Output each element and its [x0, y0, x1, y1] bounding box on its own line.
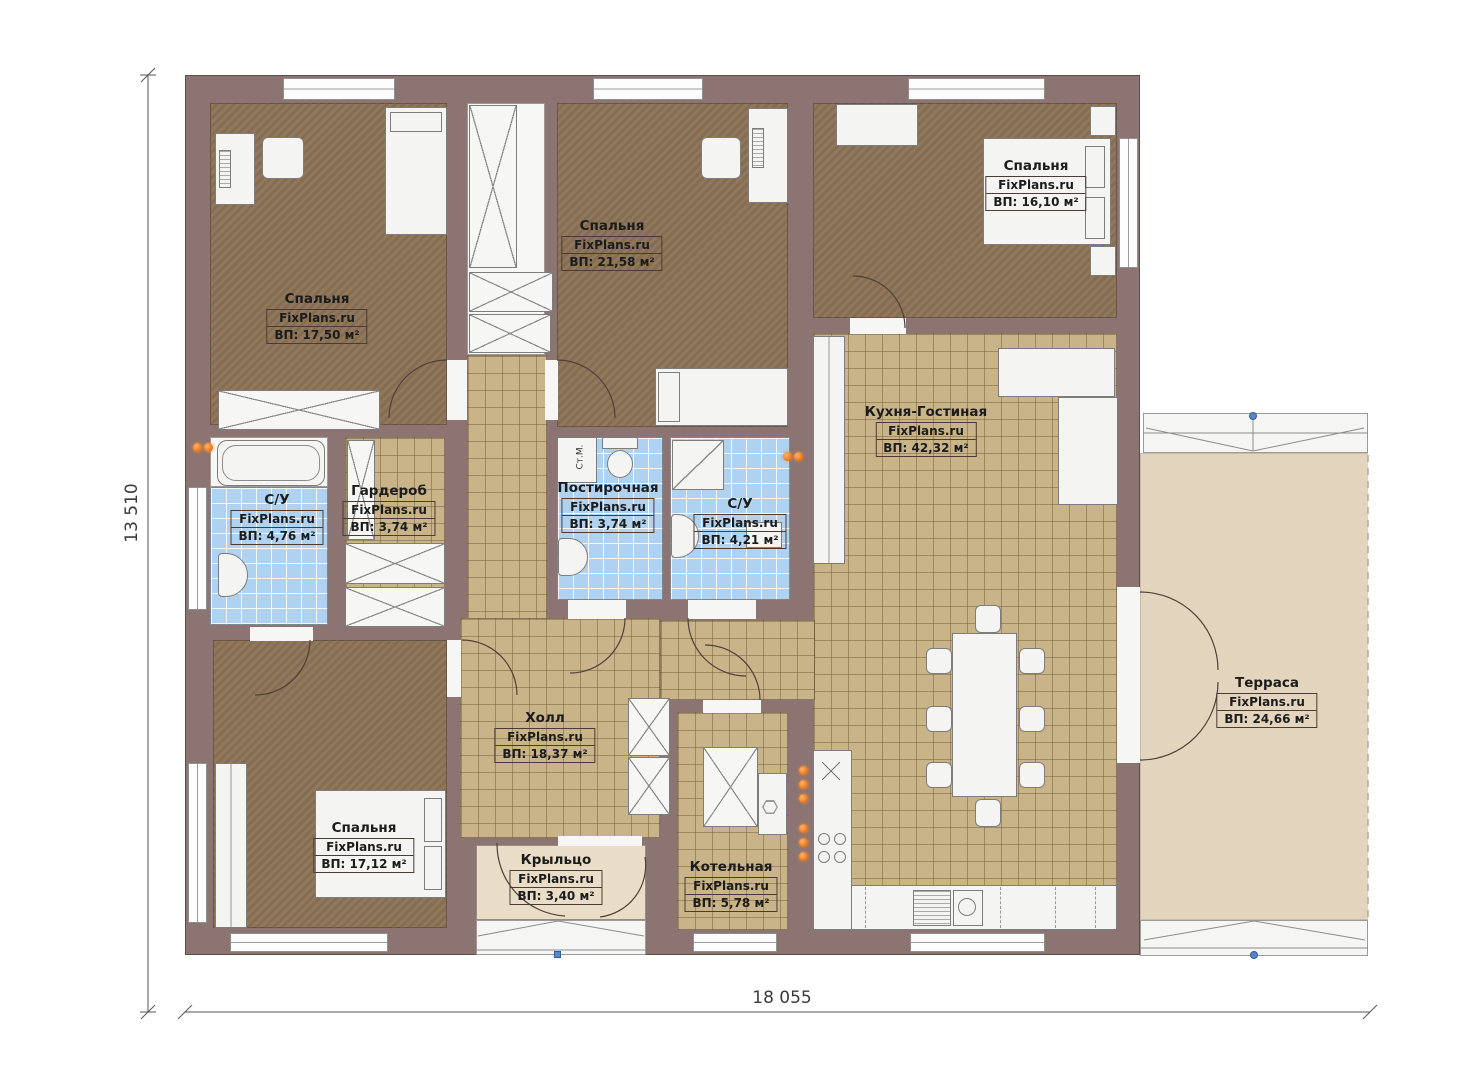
room-label-hall: Холл FixPlans.ru ВП: 18,37 м²: [494, 710, 595, 763]
room-area: ВП: 24,66 м²: [1217, 711, 1316, 727]
room-area: ВП: 3,74 м²: [562, 516, 653, 532]
brand-watermark: FixPlans.ru: [231, 511, 322, 528]
brand-watermark: FixPlans.ru: [495, 729, 594, 746]
brand-watermark: FixPlans.ru: [562, 237, 661, 254]
room-label-bathroom-1: С/У FixPlans.ru ВП: 4,76 м²: [230, 492, 323, 545]
room-area: ВП: 17,50 м²: [267, 327, 366, 343]
room-area: ВП: 21,58 м²: [562, 254, 661, 270]
room-area: ВП: 16,10 м²: [986, 194, 1085, 210]
dimension-width: 18 055: [737, 988, 827, 1008]
brand-watermark: FixPlans.ru: [314, 839, 413, 856]
room-area: ВП: 5,78 м²: [685, 895, 776, 911]
room-name: С/У: [693, 496, 786, 512]
room-label-bathroom-2: С/У FixPlans.ru ВП: 4,21 м²: [693, 496, 786, 549]
room-label-bedroom-4: Спальня FixPlans.ru ВП: 17,12 м²: [313, 820, 414, 873]
room-name: С/У: [230, 492, 323, 508]
room-label-bedroom-3: Спальня FixPlans.ru ВП: 16,10 м²: [985, 158, 1086, 211]
room-label-terrace: Терраса FixPlans.ru ВП: 24,66 м²: [1216, 675, 1317, 728]
radiator-dot-icon: [799, 780, 808, 789]
room-label-kitchen-living: Кухня-Гостиная FixPlans.ru ВП: 42,32 м²: [865, 404, 987, 457]
brand-watermark: FixPlans.ru: [1217, 694, 1316, 711]
radiator-dot-icon: [783, 452, 792, 461]
survey-marker-icon: [1249, 412, 1257, 420]
dimension-height: 13 510: [122, 477, 142, 549]
room-name: Спальня: [266, 291, 367, 307]
room-label-laundry: Постирочная FixPlans.ru ВП: 3,74 м²: [557, 480, 658, 533]
room-name: Постирочная: [557, 480, 658, 496]
room-name: Спальня: [561, 218, 662, 234]
room-name: Терраса: [1216, 675, 1317, 691]
survey-marker-icon: [554, 951, 561, 958]
room-name: Кухня-Гостиная: [865, 404, 987, 420]
survey-marker-icon: [1250, 951, 1258, 959]
room-name: Котельная: [684, 859, 777, 875]
radiator-dot-icon: [799, 852, 808, 861]
room-label-porch: Крыльцо FixPlans.ru ВП: 3,40 м²: [509, 852, 602, 905]
room-name: Крыльцо: [509, 852, 602, 868]
brand-watermark: FixPlans.ru: [562, 499, 653, 516]
room-name: Холл: [494, 710, 595, 726]
room-area: ВП: 17,12 м²: [314, 856, 413, 872]
brand-watermark: FixPlans.ru: [267, 310, 366, 327]
radiator-dot-icon: [193, 443, 202, 452]
room-area: ВП: 42,32 м²: [876, 440, 975, 456]
room-label-bedroom-2: Спальня FixPlans.ru ВП: 21,58 м²: [561, 218, 662, 271]
room-name: Спальня: [313, 820, 414, 836]
room-area: ВП: 18,37 м²: [495, 746, 594, 762]
radiator-dot-icon: [799, 838, 808, 847]
room-label-wardrobe: Гардероб FixPlans.ru ВП: 3,74 м²: [342, 483, 435, 536]
brand-watermark: FixPlans.ru: [343, 502, 434, 519]
room-area: ВП: 3,74 м²: [343, 519, 434, 535]
brand-watermark: FixPlans.ru: [510, 871, 601, 888]
brand-watermark: FixPlans.ru: [685, 878, 776, 895]
radiator-dot-icon: [799, 766, 808, 775]
room-name: Спальня: [985, 158, 1086, 174]
radiator-dot-icon: [799, 794, 808, 803]
room-label-boiler: Котельная FixPlans.ru ВП: 5,78 м²: [684, 859, 777, 912]
room-name: Гардероб: [342, 483, 435, 499]
brand-watermark: FixPlans.ru: [986, 177, 1085, 194]
room-area: ВП: 4,21 м²: [694, 532, 785, 548]
brand-watermark: FixPlans.ru: [694, 515, 785, 532]
floor-plan: Ст.М.: [0, 0, 1474, 1080]
room-label-bedroom-1: Спальня FixPlans.ru ВП: 17,50 м²: [266, 291, 367, 344]
room-area: ВП: 3,40 м²: [510, 888, 601, 904]
radiator-dot-icon: [794, 452, 803, 461]
radiator-dot-icon: [799, 824, 808, 833]
radiator-dot-icon: [204, 443, 213, 452]
brand-watermark: FixPlans.ru: [876, 423, 975, 440]
room-area: ВП: 4,76 м²: [231, 528, 322, 544]
